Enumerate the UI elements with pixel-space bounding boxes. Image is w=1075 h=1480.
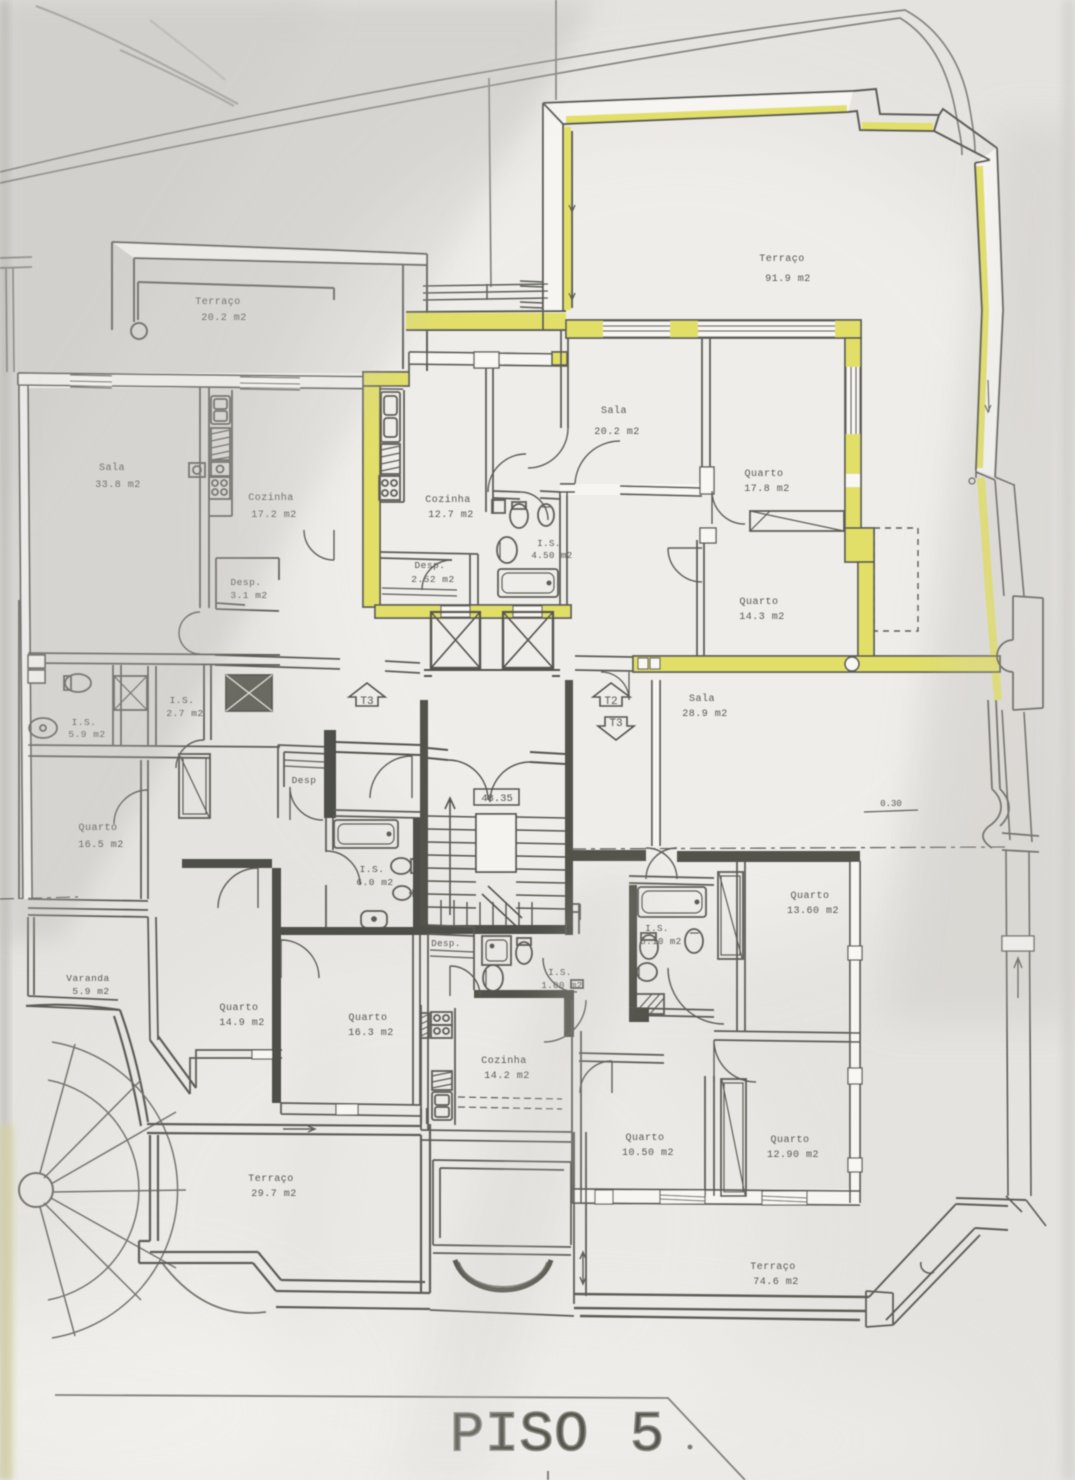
svg-text:74.6 m2: 74.6 m2 (753, 1277, 799, 1288)
svg-text:Quarto: Quarto (790, 891, 829, 902)
svg-text:10.50 m2: 10.50 m2 (622, 1148, 674, 1159)
svg-text:16.3 m2: 16.3 m2 (348, 1028, 394, 1039)
svg-text:6.0 m2: 6.0 m2 (356, 877, 393, 888)
svg-text:Quarto: Quarto (625, 1133, 664, 1144)
svg-text:0.30: 0.30 (880, 799, 902, 809)
svg-text:14.9 m2: 14.9 m2 (219, 1018, 265, 1029)
svg-text:Quarto: Quarto (348, 1013, 387, 1024)
svg-text:48.35: 48.35 (481, 793, 513, 805)
svg-text:I.S.: I.S. (537, 539, 561, 549)
svg-text:5: 5 (630, 1404, 664, 1468)
svg-text:13.60 m2: 13.60 m2 (787, 906, 839, 917)
svg-text:20.2 m2: 20.2 m2 (594, 427, 640, 438)
svg-text:Cozinha: Cozinha (425, 494, 471, 506)
svg-text:Quarto: Quarto (744, 469, 783, 480)
svg-text:Terraço: Terraço (248, 1174, 294, 1185)
svg-text:4.50 m2: 4.50 m2 (531, 551, 572, 561)
svg-text:14.3 m2: 14.3 m2 (739, 612, 785, 623)
svg-text:Terraço: Terraço (750, 1262, 796, 1273)
svg-text:T2: T2 (604, 696, 617, 708)
svg-text:Sala: Sala (689, 693, 715, 705)
svg-text:Quarto: Quarto (219, 1003, 258, 1014)
svg-text:Quarto: Quarto (739, 597, 778, 608)
svg-text:12.90 m2: 12.90 m2 (767, 1150, 819, 1161)
svg-text:T3: T3 (609, 718, 622, 730)
svg-text:91.9 m2: 91.9 m2 (765, 274, 811, 285)
svg-text:T3: T3 (360, 696, 373, 708)
svg-text:29.7 m2: 29.7 m2 (251, 1189, 297, 1200)
svg-text:17.8 m2: 17.8 m2 (744, 484, 790, 495)
svg-text:12.7 m2: 12.7 m2 (428, 510, 474, 521)
svg-text:2.52 m2: 2.52 m2 (411, 574, 454, 585)
svg-text:Varanda: Varanda (66, 973, 109, 984)
svg-text:5.10 m2: 5.10 m2 (640, 937, 681, 947)
svg-text:Desp.: Desp. (431, 939, 461, 949)
svg-text:I.S.: I.S. (360, 864, 385, 875)
svg-text:Cozinha: Cozinha (481, 1055, 527, 1067)
svg-text:Desp: Desp (292, 775, 317, 786)
svg-text:Sala: Sala (601, 405, 627, 417)
svg-text:28.9 m2: 28.9 m2 (682, 709, 728, 720)
svg-text:Terraço: Terraço (759, 254, 805, 265)
svg-text:5.9 m2: 5.9 m2 (72, 986, 109, 997)
svg-text:Quarto: Quarto (770, 1135, 809, 1146)
